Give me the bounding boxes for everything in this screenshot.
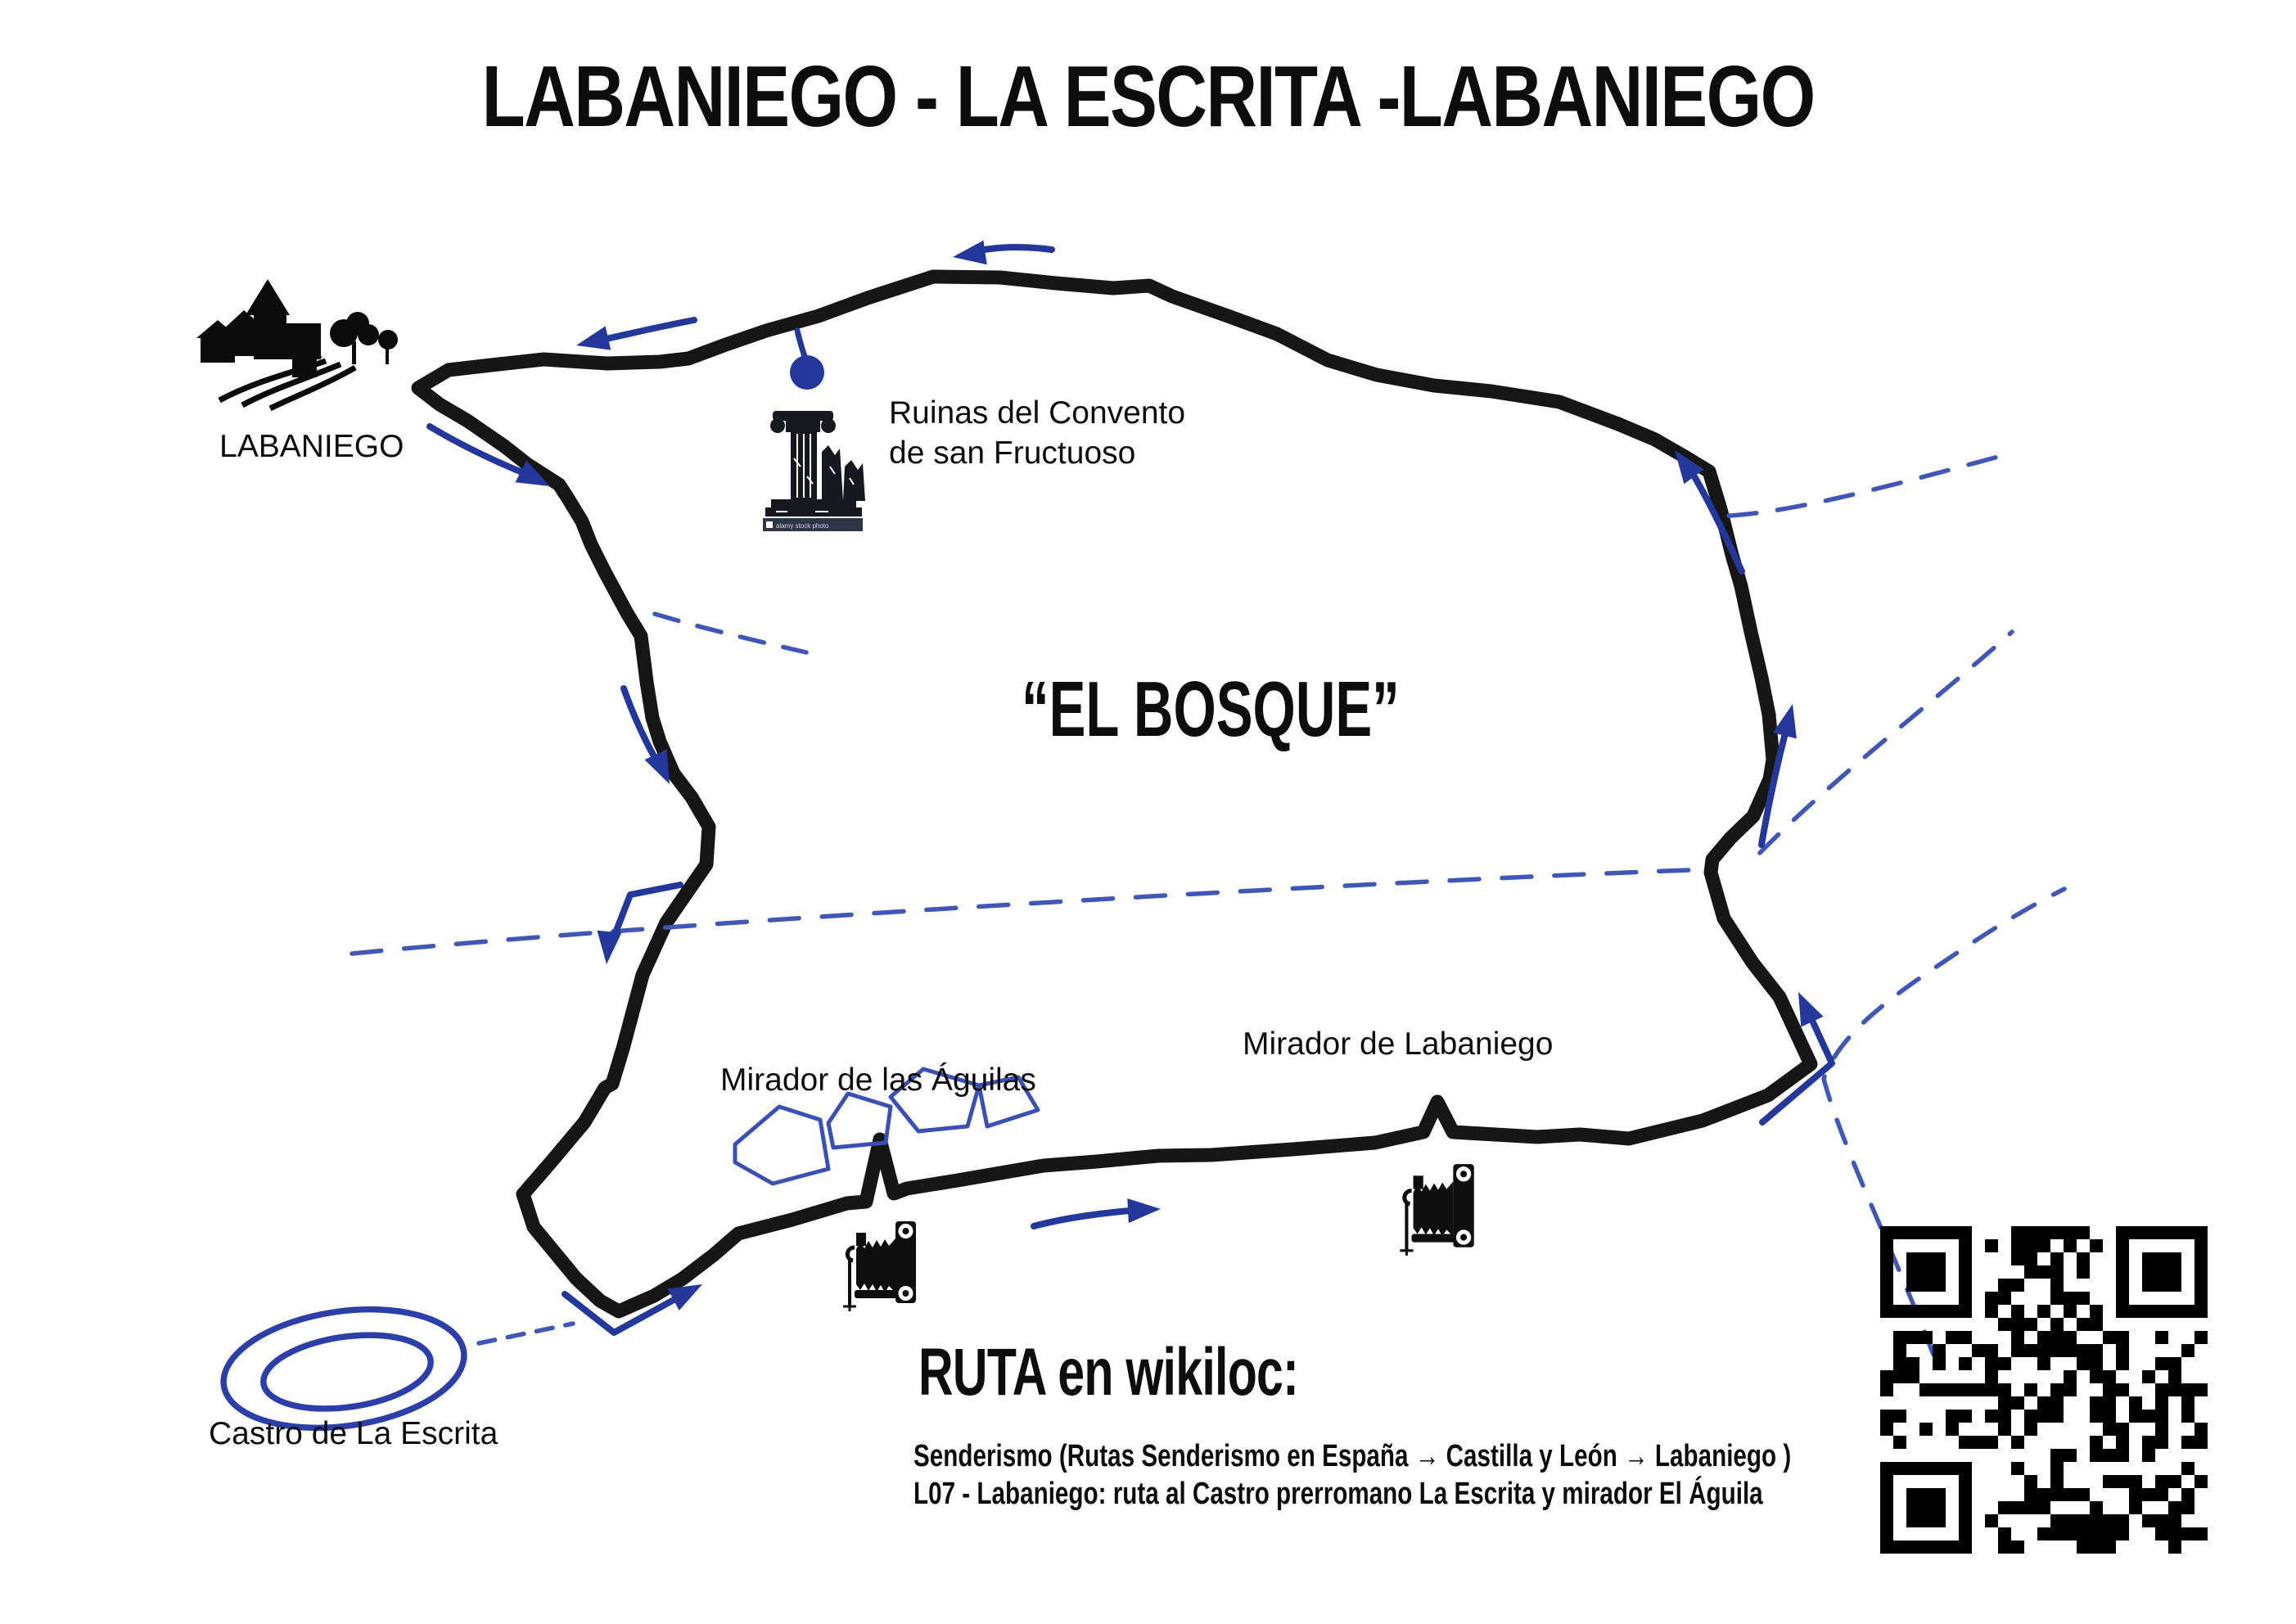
bellows-camera-icon [832, 1216, 923, 1315]
label-castro: Castro de La Escrita [209, 1416, 498, 1452]
wikiloc-heading: RUTA en wikiloc: [918, 1334, 1446, 1411]
dashed-path-6 [479, 1324, 573, 1343]
label-convento-line1: Ruinas del Convento [889, 393, 1185, 433]
wikiloc-breadcrumb-line: Senderismo (Rutas Senderismo en España →… [913, 1439, 2039, 1474]
label-labaniego: LABANIEGO [219, 429, 404, 465]
ruined-column-icon: alamy stock photo [761, 398, 881, 532]
direction-arrow-10 [1762, 992, 1832, 1122]
label-convento: Ruinas del Convento de san Fructuoso [889, 393, 1185, 473]
direction-arrow-2 [953, 241, 1052, 265]
dashed-path-4 [1760, 632, 2012, 853]
dashed-path-3 [1729, 456, 2001, 516]
direction-arrow-1 [576, 320, 694, 350]
label-convento-line2: de san Fructuoso [889, 433, 1185, 473]
watermark-text: alamy stock photo [776, 522, 829, 530]
rock-scribble-1 [735, 1107, 828, 1184]
bellows-camera-icon [1388, 1159, 1482, 1259]
label-el-bosque: “EL BOSQUE” [1022, 665, 1562, 755]
label-mirador-labaniego: Mirador de Labaniego [1243, 1026, 1553, 1062]
route-poster: { "title": "LABANIEGO - LA ESCRITA -LABA… [0, 0, 2296, 1624]
label-mirador-aguilas: Mirador de las Águilas [720, 1062, 1036, 1098]
direction-arrow-6 [1034, 1198, 1161, 1226]
page-title: LABANIEGO - LA ESCRITA -LABANIEGO [0, 47, 2296, 147]
wikiloc-route-name-line: L07 - Labaniego: ruta al Castro prerroma… [913, 1477, 2002, 1512]
convento-marker-dot [790, 331, 824, 390]
dashed-path-2 [655, 614, 806, 652]
village-silhouette-icon [195, 273, 406, 418]
dashed-path-1 [352, 869, 1709, 954]
